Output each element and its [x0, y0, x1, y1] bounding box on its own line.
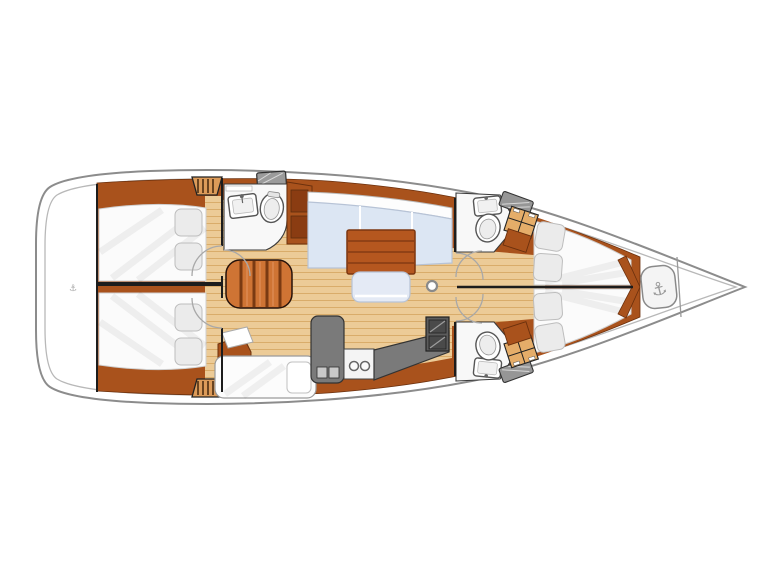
saloon-table [347, 230, 415, 274]
galley-drawer [317, 367, 327, 378]
louvered-locker-port [192, 177, 222, 195]
floor-plan-canvas: ⚓ [0, 0, 768, 576]
stove [426, 317, 449, 351]
pillow [175, 209, 202, 236]
saloon-bench [352, 272, 410, 302]
yacht-floor-plan: ⚓ [0, 0, 768, 576]
pillow [534, 221, 566, 252]
pillow [175, 243, 202, 270]
sink [228, 192, 259, 218]
shelf [226, 186, 252, 191]
companionway-steps [226, 260, 292, 308]
galley-drawer [329, 367, 339, 378]
stern-anchor-icon: ⚓ [69, 284, 77, 294]
aft-cabin-port [99, 204, 206, 281]
chart-table-pad [287, 362, 311, 393]
forward-head-port [456, 191, 538, 252]
sink-bowl [361, 362, 370, 371]
aft-cabin-starboard [99, 293, 206, 370]
sink [473, 195, 502, 217]
forward-head-starboard [456, 322, 538, 383]
sink-bowl [350, 362, 359, 371]
pillow [533, 253, 563, 282]
mast [427, 281, 437, 291]
